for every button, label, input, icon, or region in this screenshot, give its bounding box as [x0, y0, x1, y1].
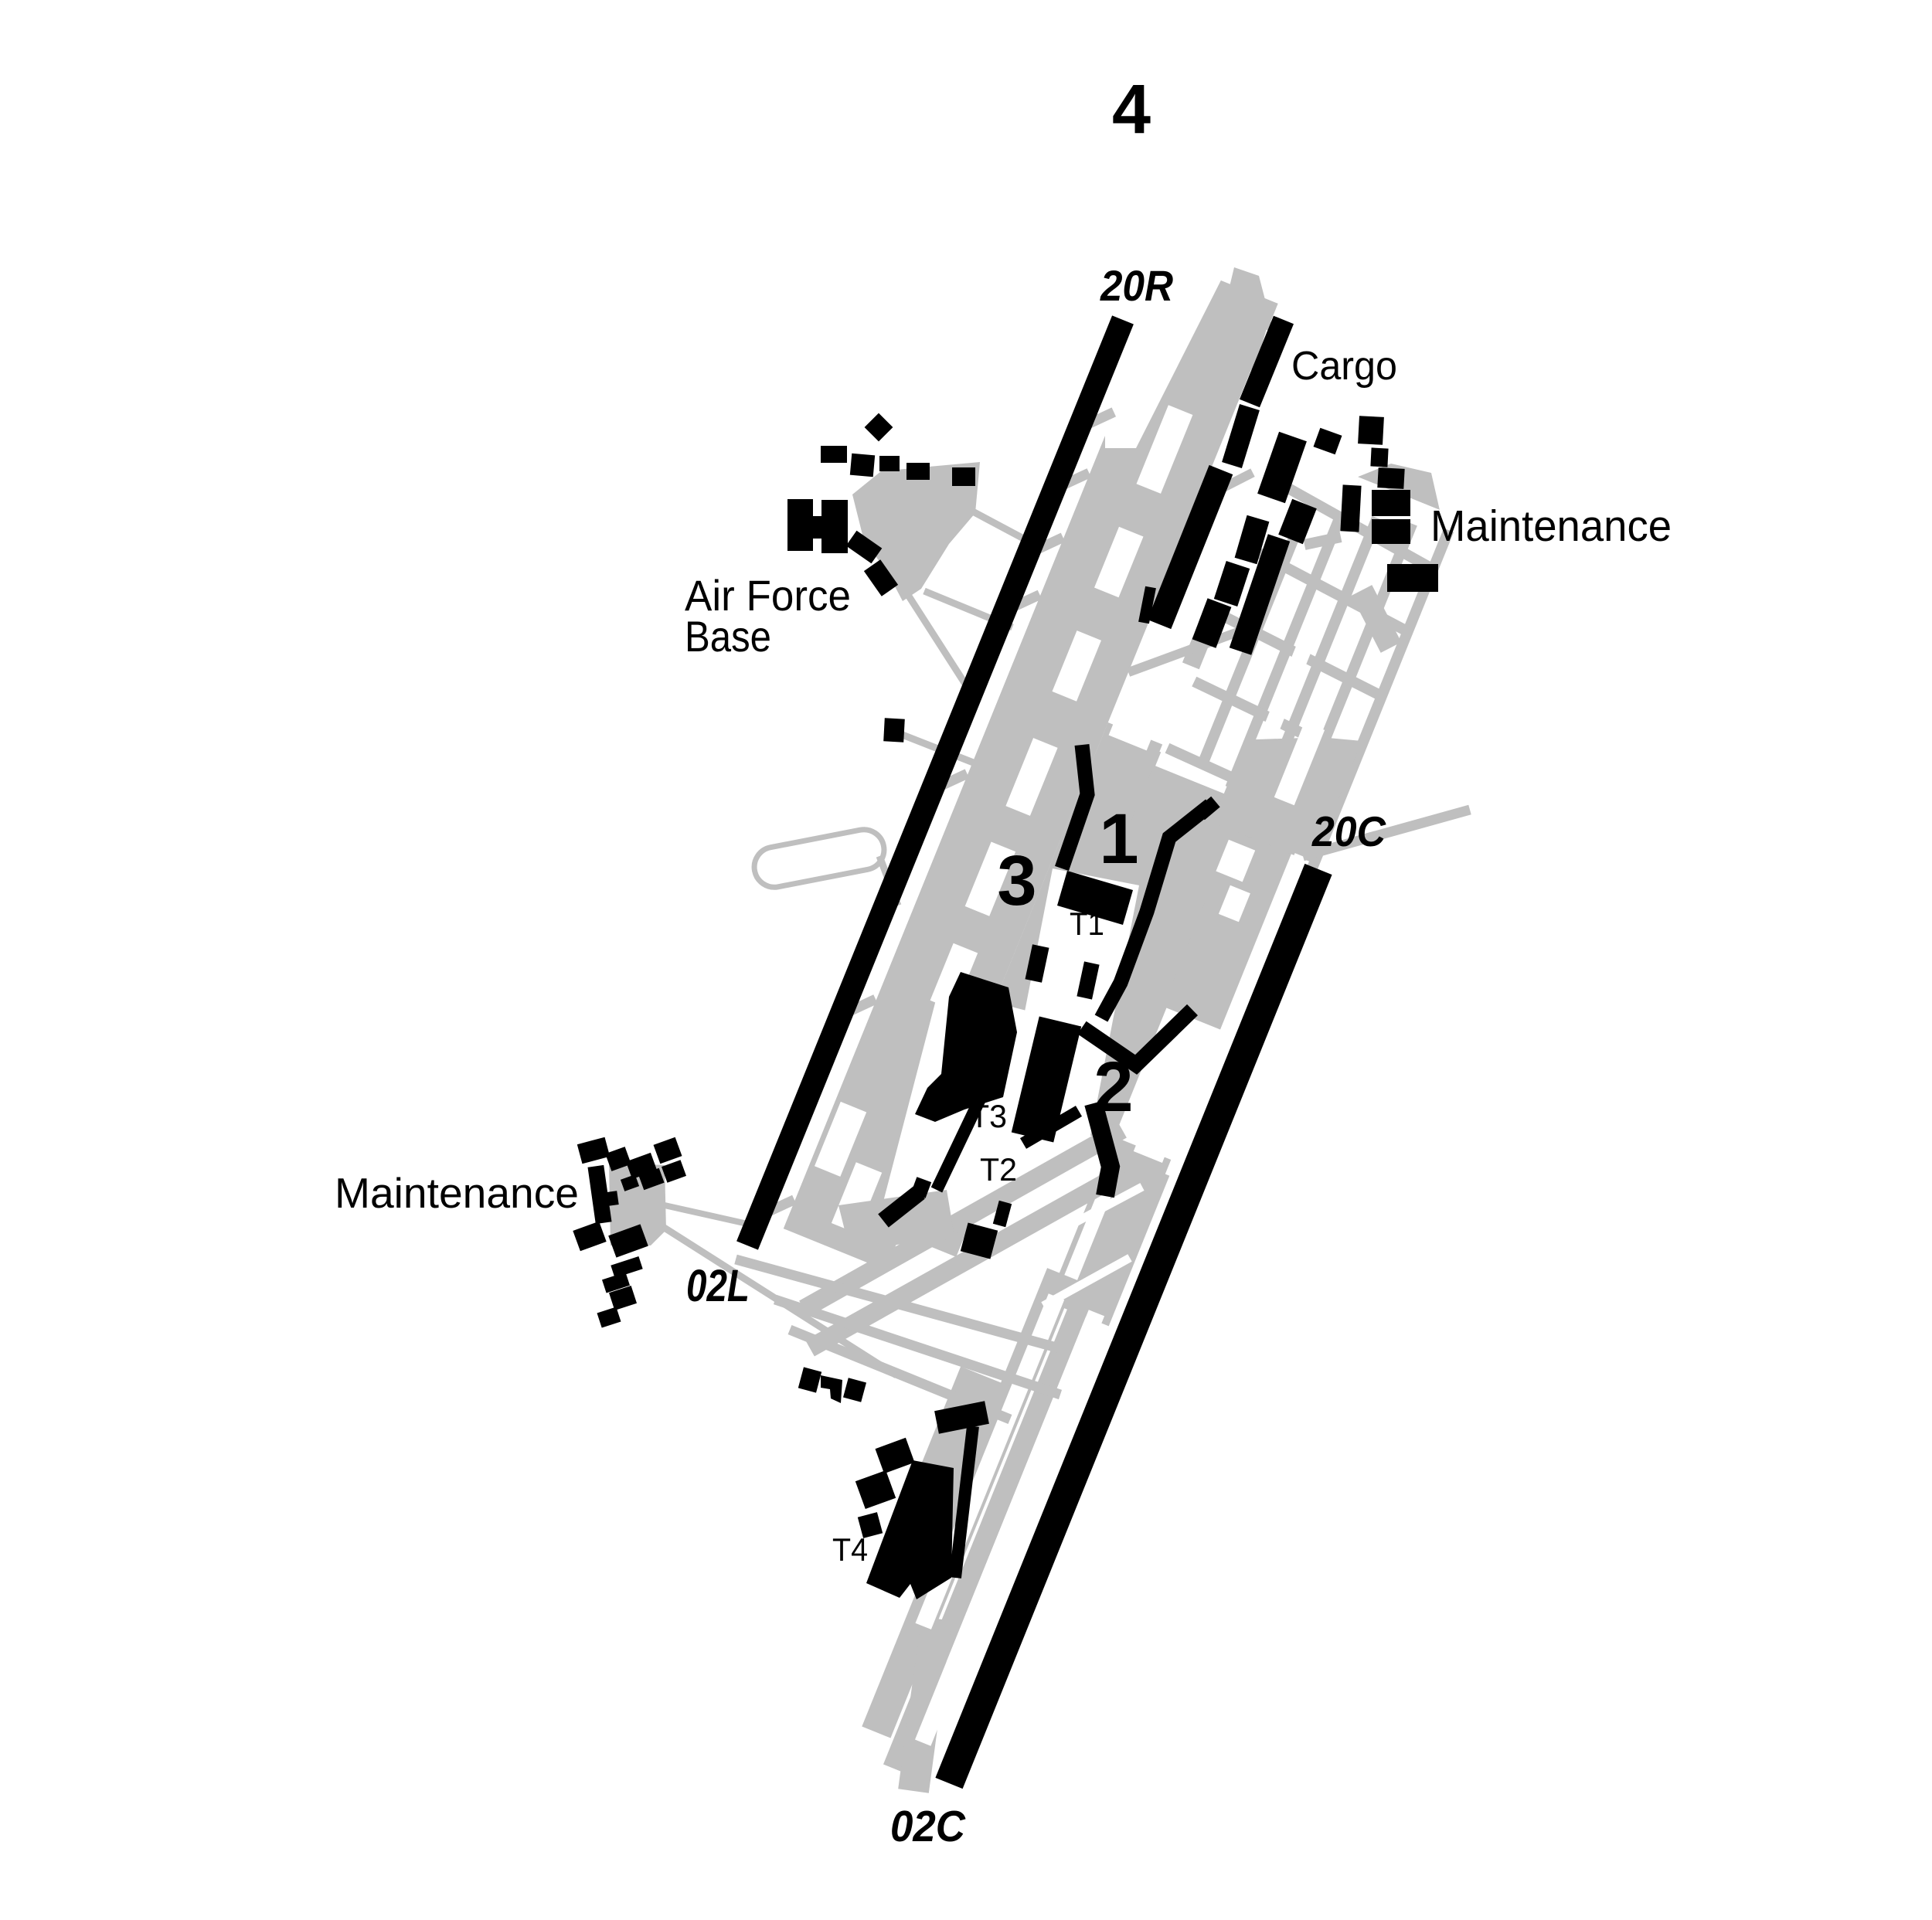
svg-text:4: 4	[1112, 71, 1151, 148]
svg-text:20R: 20R	[1100, 261, 1173, 310]
svg-text:Cargo: Cargo	[1291, 344, 1397, 389]
svg-text:Maintenance: Maintenance	[335, 1169, 579, 1217]
svg-text:Maintenance: Maintenance	[1430, 501, 1672, 551]
svg-text:02L: 02L	[686, 1261, 750, 1311]
svg-text:T2: T2	[980, 1151, 1017, 1188]
svg-text:02C: 02C	[890, 1802, 966, 1851]
svg-text:Base: Base	[685, 612, 771, 661]
svg-text:T4: T4	[832, 1531, 868, 1568]
svg-text:20C: 20C	[1311, 807, 1386, 855]
svg-text:2: 2	[1094, 1048, 1133, 1127]
svg-text:T1: T1	[1070, 906, 1104, 942]
svg-text:3: 3	[997, 841, 1036, 920]
svg-text:1: 1	[1099, 800, 1138, 878]
svg-text:T3: T3	[970, 1098, 1007, 1134]
